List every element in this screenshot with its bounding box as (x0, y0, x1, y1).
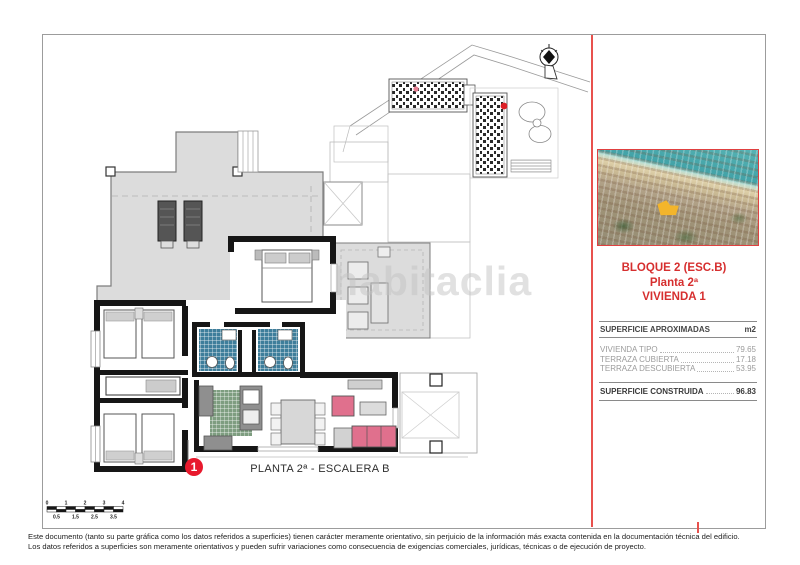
site-pool (519, 102, 551, 143)
bathroom-1 (199, 329, 237, 371)
sink (207, 357, 218, 368)
disclaimer-line-1: Este documento (tanto su parte gráfica c… (28, 532, 776, 542)
floorplan-document-page: 1 0 1 2 3 4 (0, 0, 800, 565)
plan-caption: PLANTA 2ª - ESCALERA B (160, 463, 480, 475)
surface-table-header: SUPERFICIE APROXIMADAS m2 (599, 321, 757, 338)
roof-outline (388, 174, 470, 242)
aerial-photo (597, 149, 759, 246)
scale-label: 3.5 (110, 515, 117, 521)
chair (315, 433, 325, 445)
appliance (243, 410, 259, 424)
disclaimer-line-2: Los datos referidos a superficies son me… (28, 542, 776, 552)
row-value: 17.18 (736, 355, 756, 365)
scale-label: 4 (122, 501, 125, 507)
dotted-leader (697, 371, 734, 372)
surface-total-row: SUPERFICIE CONSTRUIDA 96.83 (599, 382, 757, 401)
row-value: 79.65 (736, 345, 756, 355)
row-label: TERRAZA DESCUBIERTA (600, 364, 695, 374)
unit-titles: BLOQUE 2 (ESC.B) Planta 2ª VIVIENDA 1 (592, 261, 756, 305)
appliance (243, 390, 259, 404)
watermark: habitaclia (333, 258, 532, 305)
bathroom-2 (258, 329, 298, 371)
pergola (400, 373, 477, 453)
column (106, 167, 115, 176)
table-row: TERRAZA CUBIERTA 17.18 (600, 355, 756, 365)
elevator-shaft (324, 182, 362, 225)
nightstand (135, 453, 143, 464)
surface-unit: m2 (744, 325, 756, 334)
chair (315, 418, 325, 430)
site-plan (334, 44, 590, 178)
scale-bar: 0 1 2 3 4 0. (46, 501, 125, 521)
armchair (332, 396, 354, 416)
table-row: VIVIENDA TIPO 79.65 (600, 345, 756, 355)
kitchen-counter (199, 386, 213, 416)
block-title: BLOQUE 2 (ESC.B) (592, 261, 756, 276)
table-row: TERRAZA DESCUBIERTA 53.95 (600, 364, 756, 374)
scale-label: 0 (46, 501, 49, 507)
scale-label: 3 (103, 501, 106, 507)
surface-header-label: SUPERFICIE APROXIMADAS (600, 325, 710, 334)
site-marker-red (501, 103, 508, 110)
site-hatched-area (511, 160, 551, 172)
chair (315, 403, 325, 415)
surface-table: SUPERFICIE APROXIMADAS m2 VIVIENDA TIPO … (599, 321, 757, 401)
floor-title: Planta 2ª (592, 276, 756, 291)
outdoor-table (378, 247, 390, 257)
chair (271, 433, 281, 445)
dotted-leader (681, 362, 734, 363)
outdoor-chair (348, 312, 368, 329)
scale-label: 2.5 (91, 515, 98, 521)
row-label: VIVIENDA TIPO (600, 345, 658, 355)
sofa (352, 426, 396, 447)
surface-table-rows: VIVIENDA TIPO 79.65 TERRAZA CUBIERTA 17.… (599, 338, 757, 382)
kitchen-counter (204, 436, 232, 450)
stairwell (238, 131, 258, 172)
disclaimer-footer: Este documento (tanto su parte gráfica c… (28, 532, 776, 552)
toilet (226, 357, 235, 369)
total-label: SUPERFICIE CONSTRUIDA (600, 387, 704, 396)
north-arrow-icon (540, 44, 558, 79)
scale-label: 2 (84, 501, 87, 507)
dining-area (271, 400, 325, 445)
scale-label: 1.5 (72, 515, 79, 521)
chair (271, 418, 281, 430)
scale-label: 0.5 (53, 515, 60, 521)
wardrobe (106, 377, 180, 395)
master-bedroom (255, 250, 319, 302)
nightstand (135, 308, 143, 319)
coffee-table (360, 402, 386, 415)
sink (265, 357, 276, 368)
column (430, 441, 442, 453)
row-label: TERRAZA CUBIERTA (600, 355, 679, 365)
property-highlight-marker (657, 199, 680, 218)
total-value: 96.83 (736, 387, 756, 396)
site-marker-pink (413, 86, 418, 91)
dining-table (281, 400, 315, 444)
unit-title: VIVIENDA 1 (592, 290, 756, 305)
site-building-block1 (389, 79, 475, 112)
chair (271, 403, 281, 415)
scale-label: 1 (65, 501, 68, 507)
dotted-leader (660, 352, 734, 353)
tv-unit (348, 380, 382, 389)
side-table (334, 428, 352, 448)
site-building-block2 (473, 93, 507, 177)
sun-lounger (158, 201, 176, 248)
dotted-leader (706, 393, 734, 394)
sun-lounger (184, 201, 202, 248)
column (430, 374, 442, 386)
toilet (284, 357, 293, 369)
row-value: 53.95 (736, 364, 756, 374)
